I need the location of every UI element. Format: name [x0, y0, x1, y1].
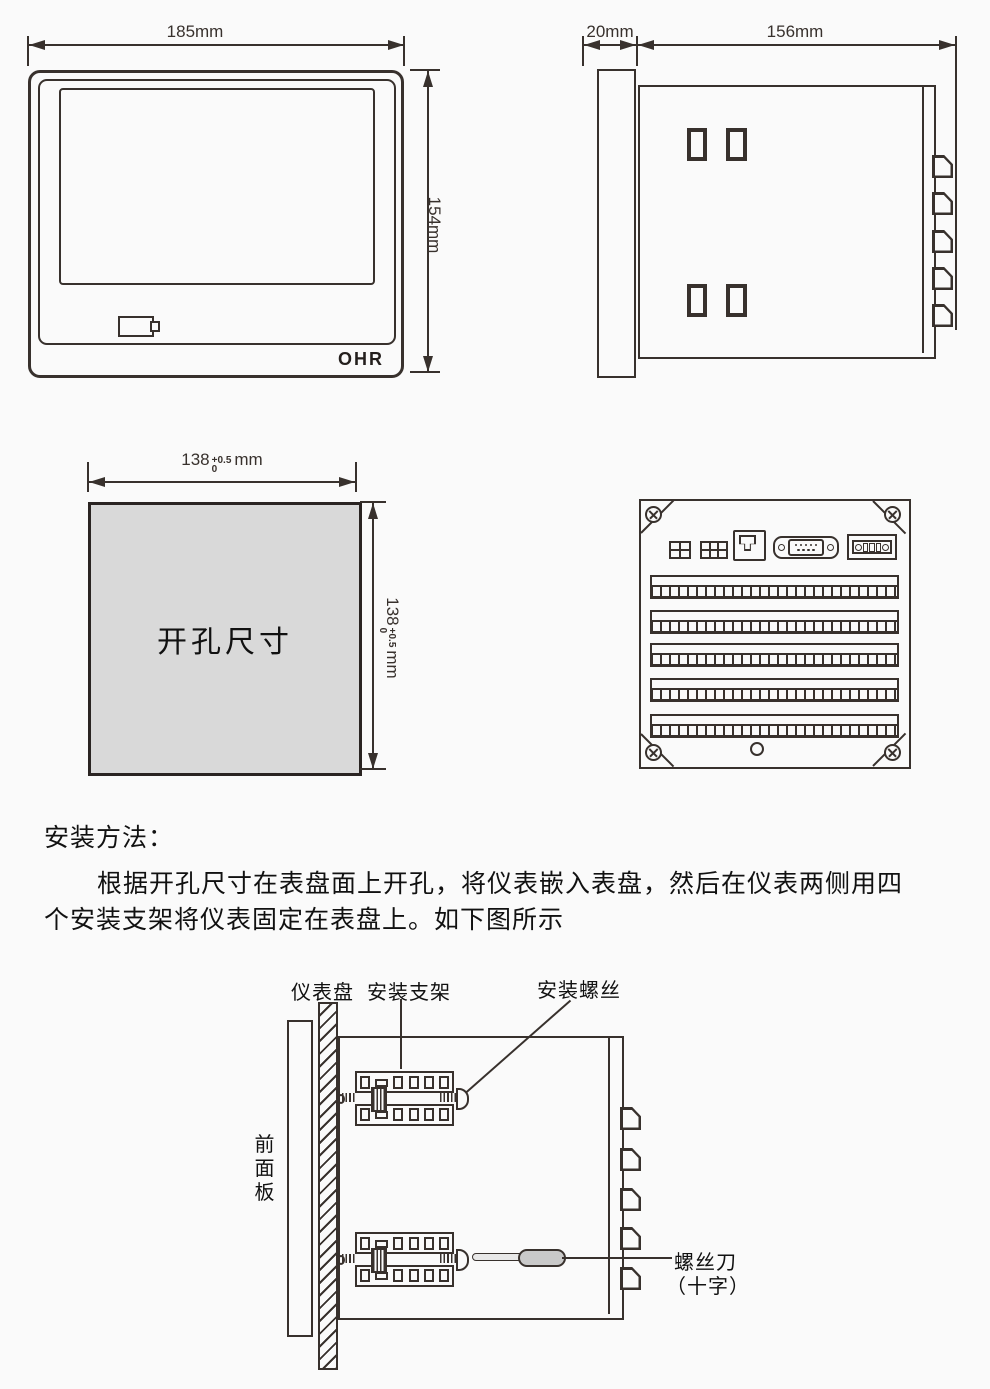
dim-arrow-right: [388, 40, 404, 50]
front-width-dim-label: 185mm: [145, 22, 245, 42]
side-body-rear-line: [922, 87, 924, 353]
front-panel-lip: [287, 1020, 313, 1337]
io-connector-icon: [700, 541, 728, 559]
front-panel-label: 前面板: [252, 1133, 278, 1205]
instructions-heading: 安装方法：: [44, 818, 174, 854]
rj45-port-icon: [733, 530, 766, 561]
screw-label: 安装螺丝: [537, 974, 621, 1003]
mounting-bracket: [355, 1232, 454, 1287]
bracket-slot: [726, 284, 747, 317]
front-height-dim-label: 154mm: [424, 175, 444, 275]
cutout-height-dim-label: 138+0.50mm: [378, 578, 402, 698]
dim-ext-line: [955, 36, 957, 330]
bracket-slot: [726, 128, 747, 161]
panel-label: 仪表盘: [291, 976, 354, 1005]
dim-line: [638, 44, 955, 46]
db9-port-icon: [773, 536, 839, 559]
side-body: [638, 85, 936, 359]
screwdriver-handle-icon: [518, 1249, 566, 1267]
dim-line: [372, 503, 374, 769]
manual-page: 185mm OHR 154mm 20mm 156mm: [0, 0, 990, 1389]
dim-arrow-left: [89, 477, 105, 487]
dim-line: [29, 44, 404, 46]
diagram-body-rear-line: [608, 1038, 610, 1314]
bracket-slot: [687, 128, 707, 161]
terminal-strip: [650, 575, 899, 599]
dim-arrow-down: [368, 753, 378, 769]
terminal-strip: [650, 643, 899, 667]
usb-cover-icon: [118, 316, 154, 337]
dim-arrow-down: [423, 356, 433, 372]
screwdriver-type-label: （十字）: [666, 1270, 750, 1299]
instructions-line1: 根据开孔尺寸在表盘面上开孔，将仪表嵌入表盘，然后在仪表两侧用四: [97, 864, 903, 900]
dim-arrow-up: [368, 503, 378, 519]
bracket-slot: [687, 284, 707, 317]
usb-cover-tab-icon: [150, 321, 160, 332]
dim-arrow-left: [29, 40, 45, 50]
dim-arrow-right: [339, 477, 355, 487]
ground-hole-icon: [750, 742, 764, 756]
power-terminal-icon: [847, 534, 897, 560]
ohr-logo: OHR: [338, 349, 384, 370]
front-screen: [59, 88, 375, 285]
mounting-bracket: [355, 1071, 454, 1126]
terminal-strip: [650, 610, 899, 634]
cutout-label: 开孔尺寸: [157, 617, 293, 661]
instructions-line2: 个安装支架将仪表固定在表盘上。如下图所示: [44, 900, 564, 936]
dim-line: [89, 481, 355, 483]
dim-ext-line: [355, 462, 357, 492]
terminal-strip: [650, 678, 899, 702]
cutout-square: 开孔尺寸: [88, 502, 362, 776]
screwdriver-leader-line: [562, 1257, 672, 1259]
side-length-dim-label: 156mm: [745, 22, 845, 42]
terminal-strip: [650, 714, 899, 738]
cutout-width-dim-label: 138+0.50mm: [142, 450, 302, 474]
dim-arrow-up: [423, 71, 433, 87]
screwdriver-shaft-icon: [472, 1253, 524, 1261]
dim-arrow-right: [939, 40, 955, 50]
dim-arrow-left: [638, 40, 654, 50]
bracket-label: 安装支架: [367, 976, 451, 1005]
side-front-bezel: [597, 69, 636, 378]
io-connector-icon: [669, 541, 691, 559]
side-depth-dim-label: 20mm: [580, 22, 640, 42]
panel-wall-hatch: [318, 1002, 338, 1370]
